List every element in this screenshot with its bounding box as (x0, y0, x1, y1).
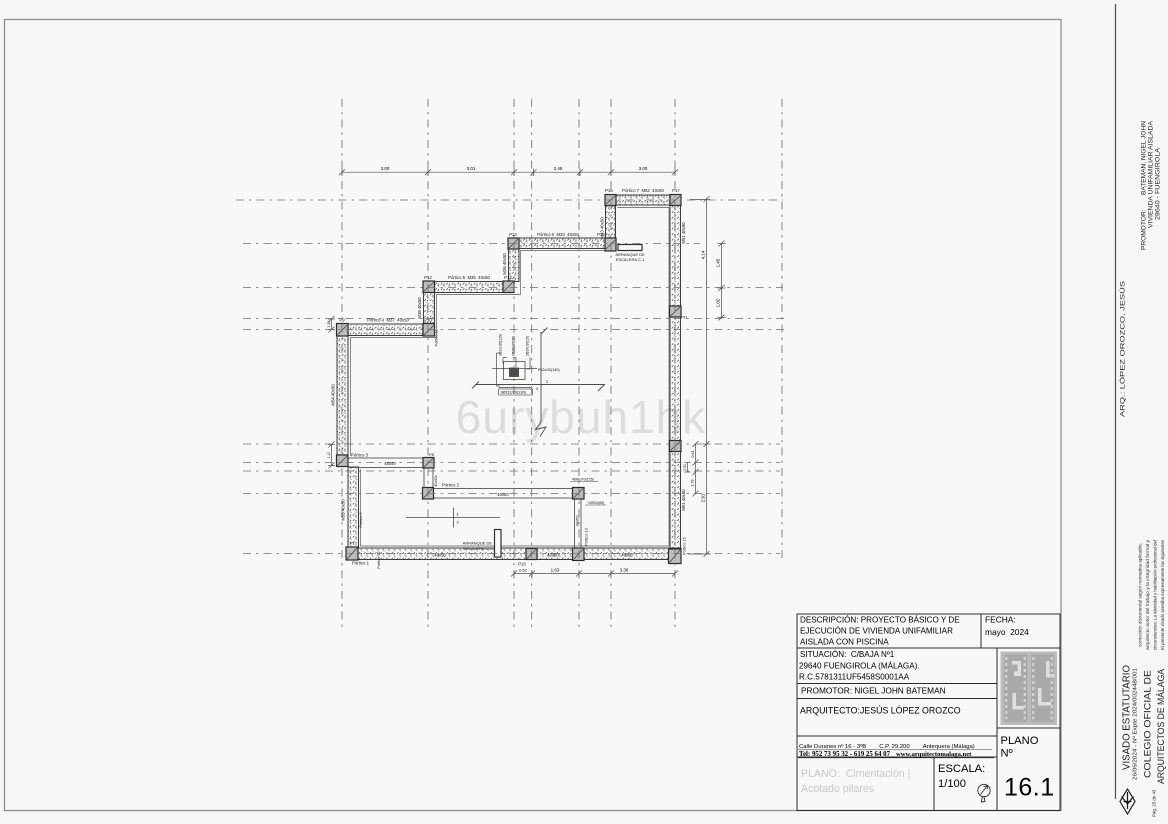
svg-text:Pág. 25 de 43: Pág. 25 de 43 (1152, 789, 1157, 817)
svg-text:corrección documental según no: corrección documental según normativa ap… (1138, 543, 1143, 647)
svg-text:Acotado pilares: Acotado pilares (801, 783, 874, 795)
svg-text:VISADO ESTATUTARIO: VISADO ESTATUTARIO (1122, 665, 1133, 770)
svg-text:1.30: 1.30 (327, 321, 331, 328)
svg-text:Nº: Nº (1001, 748, 1013, 760)
svg-text:0.61: 0.61 (691, 451, 695, 458)
svg-text:M43 40x50: M43 40x50 (600, 217, 605, 239)
svg-text:0.62: 0.62 (519, 568, 528, 573)
svg-text:mayo 2024: mayo 2024 (985, 627, 1029, 637)
svg-text:40x40a: 40x40a (434, 475, 438, 486)
svg-text:FECHA:: FECHA: (985, 615, 1016, 625)
svg-text:P17: P17 (672, 188, 680, 193)
svg-text:29640 FUENGIROLA (MÁLAGA).: 29640 FUENGIROLA (MÁLAGA). (799, 662, 920, 671)
svg-text:Pórtico 1: Pórtico 1 (352, 561, 370, 566)
svg-text:1.45: 1.45 (716, 258, 721, 267)
svg-text:PROMOTOR:: PROMOTOR: (1141, 209, 1148, 250)
svg-text:Pórtico 15: Pórtico 15 (682, 536, 687, 555)
svg-text:P12c/20(140): P12c/20(140) (538, 368, 560, 372)
svg-text:M55 40x50: M55 40x50 (341, 499, 346, 521)
svg-text:BATEMAN, NIGEL JOHN: BATEMAN, NIGEL JOHN (1141, 121, 1148, 195)
svg-text:P1: P1 (350, 542, 355, 546)
svg-text:M36 40x50: M36 40x50 (502, 253, 507, 275)
svg-text:Calle Duranes nº 16 - 3ºB: Calle Duranes nº 16 - 3ºB C.P. 29.200 An… (799, 743, 975, 750)
svg-text:EJECUCIÓN DE VIVIENDA UNIFAMIL: EJECUCIÓN DE VIVIENDA UNIFAMILIAR (800, 627, 953, 636)
svg-text:P18: P18 (518, 562, 526, 567)
svg-text:ARQ.: LÓPEZ OROZCO, JESÚS: ARQ.: LÓPEZ OROZCO, JESÚS (1118, 280, 1127, 417)
svg-text:P9: P9 (339, 318, 345, 323)
svg-text:PLANO: Cimentación |: PLANO: Cimentación | (801, 768, 910, 780)
svg-text:PROMOTOR: NIGEL JOHN BATEMAN: PROMOTOR: NIGEL JOHN BATEMAN (801, 686, 946, 696)
svg-text:Pórtico 5 M35 40x50: Pórtico 5 M35 40x50 (448, 275, 490, 280)
svg-text:Pórtico 6 M33 40x50: Pórtico 6 M33 40x50 (537, 232, 579, 237)
svg-text:3Ø16c/20(30): 3Ø16c/20(30) (512, 336, 516, 356)
svg-text:16.1: 16.1 (1004, 774, 1055, 802)
svg-text:3.00: 3.00 (639, 166, 648, 171)
svg-text:ARQUITECTO:JESÚS LÓPEZ OROZCO: ARQUITECTO:JESÚS LÓPEZ OROZCO (800, 706, 961, 716)
svg-text:Pórtico 11: Pórtico 11 (435, 330, 439, 347)
svg-text:P16: P16 (605, 188, 613, 193)
svg-text:ESCALA:: ESCALA: (938, 763, 985, 775)
svg-text:0.30: 0.30 (683, 464, 687, 471)
svg-text:2.91: 2.91 (701, 493, 706, 502)
svg-text:2Ø10c/20(15): 2Ø10c/20(15) (526, 336, 530, 356)
svg-text:www.arquitectomalaga.net: www.arquitectomalaga.net (896, 751, 972, 758)
svg-text:DESCRIPCIÓN: PROYECTO BÁSICO Y: DESCRIPCIÓN: PROYECTO BÁSICO Y DE (800, 616, 960, 625)
svg-text:P8: P8 (429, 452, 435, 457)
svg-text:Tel: 952 73 95 32 - 619 25 64: Tel: 952 73 95 32 - 619 25 64 07 (799, 751, 891, 758)
svg-text:VIVIENDA UNIFAMILIAR AISLADA: VIVIENDA UNIFAMILIAR AISLADA (1148, 120, 1155, 228)
svg-text:4Ø8c/70(135): 4Ø8c/70(135) (572, 478, 594, 482)
svg-text:M51 40x50: M51 40x50 (681, 489, 686, 511)
svg-text:P12: P12 (424, 275, 432, 280)
svg-text:1.63: 1.63 (551, 568, 560, 573)
svg-text:P14: P14 (509, 232, 517, 237)
svg-text:Pórtico 2: Pórtico 2 (442, 483, 460, 488)
svg-text:ESCALERA C-1: ESCALERA C-1 (616, 257, 645, 262)
svg-text:R.C.5781311UF5458S0001AA: R.C.5781311UF5458S0001AA (799, 673, 910, 682)
svg-text:26/06/2024 - Nº Expte 2024/002: 26/06/2024 - Nº Expte 2024/002448/001 (1133, 668, 1139, 780)
svg-text:ARRANQUE DE: ARRANQUE DE (463, 541, 493, 546)
svg-text:1.02: 1.02 (716, 298, 721, 307)
svg-text:Pórtico 7 M52 40x50: Pórtico 7 M52 40x50 (622, 188, 664, 193)
svg-text:P11: P11 (681, 315, 689, 320)
svg-text:P10: P10 (424, 318, 432, 323)
svg-text:1.78: 1.78 (691, 480, 695, 487)
svg-text:circunstancias: La identidad y: circunstancias: La identidad y habilitac… (1153, 540, 1158, 650)
svg-text:Pórtico 12: Pórtico 12 (377, 551, 381, 568)
svg-text:Pórtico 4 M37 40x50: Pórtico 4 M37 40x50 (367, 318, 409, 323)
svg-text:Pórtico 9: Pórtico 9 (359, 513, 363, 528)
svg-text:40x60: 40x60 (547, 553, 559, 558)
svg-text:AISLADA CON PISCINA: AISLADA CON PISCINA (800, 638, 889, 647)
svg-text:3.01: 3.01 (467, 166, 476, 171)
svg-text:+2Ø10(85): +2Ø10(85) (587, 501, 604, 505)
svg-text:6urybuh1hk: 6urybuh1hk (456, 391, 706, 443)
svg-text:3.36: 3.36 (620, 568, 629, 573)
svg-text:4.14: 4.14 (701, 250, 706, 259)
svg-text:PLANO: PLANO (1001, 735, 1039, 747)
svg-text:COLEGIO OFICIAL DE: COLEGIO OFICIAL DE (1143, 670, 1154, 778)
svg-text:M54 40x50: M54 40x50 (331, 384, 336, 406)
svg-text:3Ø12c/20(130): 3Ø12c/20(130) (501, 391, 527, 395)
svg-text:3.00: 3.00 (381, 166, 390, 171)
svg-text:ESCALERA C-2: ESCALERA C-2 (463, 546, 492, 551)
svg-text:M51 40x50: M51 40x50 (681, 222, 686, 244)
svg-text:arquitecto autor del trabajo y: arquitecto autor del trabajo y la integr… (1145, 539, 1150, 650)
svg-text:SITUACIÓN: C/BAJA Nº1: SITUACIÓN: C/BAJA Nº1 (800, 650, 895, 659)
svg-text:29640 - FUENGIROLA: 29640 - FUENGIROLA (1155, 147, 1162, 220)
svg-text:45x40: 45x40 (384, 461, 396, 466)
svg-text:M38 40x50: M38 40x50 (417, 297, 422, 319)
svg-text:1.10: 1.10 (327, 452, 331, 459)
svg-text:40x60: 40x60 (621, 553, 633, 558)
svg-text:P13: P13 (504, 275, 512, 280)
svg-text:40x50: 40x50 (434, 553, 446, 558)
svg-text:40x50: 40x50 (497, 492, 509, 497)
svg-text:1/100: 1/100 (938, 778, 966, 790)
svg-text:Pórtico 13: Pórtico 13 (584, 527, 589, 546)
svg-text:Pórtico 3: Pórtico 3 (351, 453, 369, 458)
svg-text:2.48: 2.48 (554, 166, 563, 171)
svg-text:ARQUITECTOS DE MÁLAGA: ARQUITECTOS DE MÁLAGA (1156, 668, 1167, 784)
svg-text:40x50: 40x50 (575, 515, 580, 527)
svg-text:El presente visado acredita ex: El presente visado acredita expresamente… (1160, 539, 1165, 650)
